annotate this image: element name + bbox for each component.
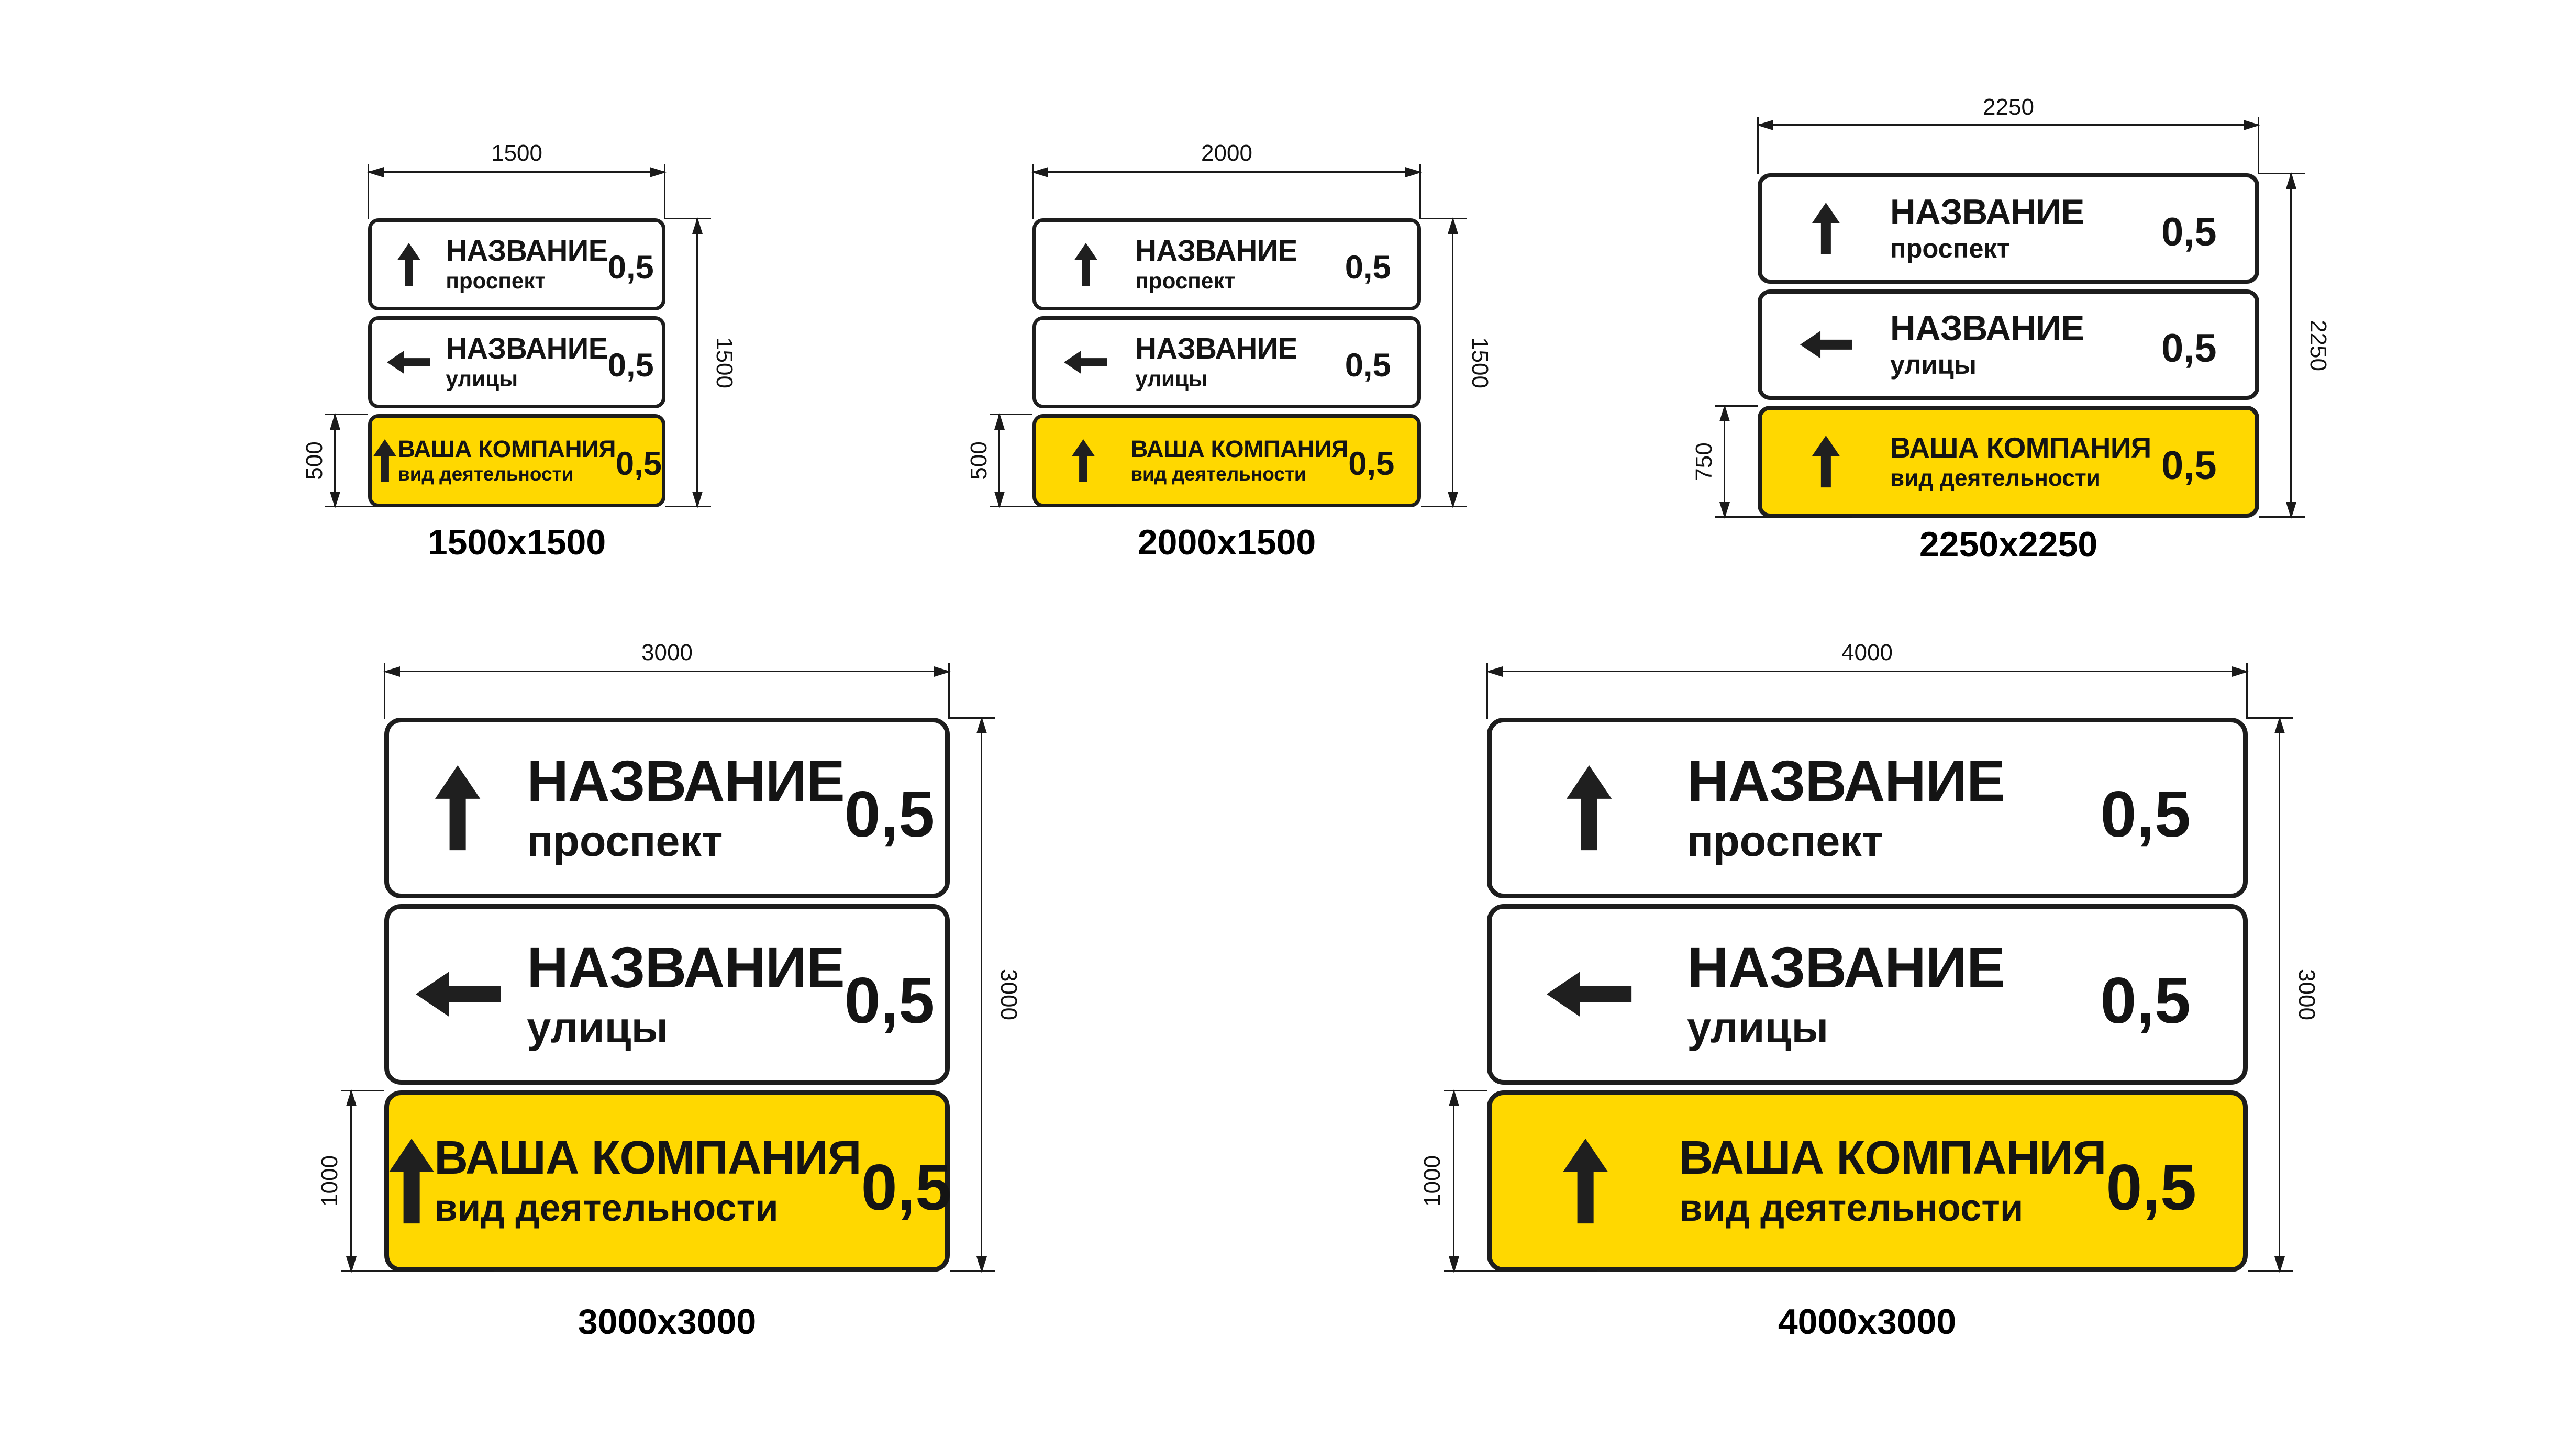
panel-text: НАЗВАНИЕ проспект <box>446 234 607 294</box>
panel-company: ВАША КОМПАНИЯ вид деятельности 0,5 <box>1758 406 2259 518</box>
panel-title: НАЗВАНИЕ <box>1687 935 2100 1001</box>
panel-title: НАЗВАНИЕ <box>1890 192 2161 233</box>
panel-distance: 0,5 <box>2161 435 2255 488</box>
panel-distance: 0,5 <box>1348 439 1417 483</box>
bottom-panel-dimension-line <box>1453 1090 1454 1272</box>
sign-figure-2250x2250: 2250 НАЗВАНИЕ проспект 0,5 НАЗВАНИЕ улиц… <box>1695 110 2333 575</box>
panel-subtitle: вид деятельности <box>1890 464 2161 492</box>
height-dimension-label: 1500 <box>1468 337 1491 388</box>
extension-line <box>948 663 950 719</box>
arrow-cell <box>1036 351 1135 374</box>
extension-line <box>1757 117 1759 174</box>
panel-street: НАЗВАНИЕ улицы 0,5 <box>1487 904 2248 1085</box>
panel-text: НАЗВАНИЕ проспект <box>1890 192 2161 264</box>
size-caption: 1500x1500 <box>428 522 606 563</box>
panel-title: ВАША КОМПАНИЯ <box>434 1131 861 1185</box>
panel-distance: 0,5 <box>1345 242 1417 286</box>
bottom-panel-dimension-line <box>1724 406 1725 518</box>
extension-line <box>1715 405 1758 407</box>
panel-title: НАЗВАНИЕ <box>446 234 607 268</box>
extension-line <box>950 717 995 719</box>
panel-subtitle: улицы <box>446 366 607 393</box>
width-dimension-label: 4000 <box>1841 641 1893 664</box>
panel-avenue: НАЗВАНИЕ проспект 0,5 <box>368 218 665 310</box>
extension-line <box>1486 663 1488 719</box>
width-dimension-line <box>1758 124 2259 126</box>
height-dimension-line <box>1452 218 1453 507</box>
panel-title: ВАША КОМПАНИЯ <box>1890 431 2161 464</box>
arrow-cell <box>389 972 527 1017</box>
width-dimension-label: 3000 <box>641 641 693 664</box>
arrow-cell <box>1762 331 1890 359</box>
up-arrow-icon <box>1072 439 1095 483</box>
panel-avenue: НАЗВАНИЕ проспект 0,5 <box>1487 718 2248 898</box>
extension-line <box>341 1270 494 1272</box>
panel-subtitle: вид деятельности <box>1679 1186 2106 1231</box>
arrow-cell <box>1492 765 1687 850</box>
left-arrow-icon <box>1800 331 1852 359</box>
panel-title: НАЗВАНИЕ <box>527 749 844 815</box>
sign-figure-3000x3000: 3000 НАЗВАНИЕ проспект 0,5 НАЗВАНИЕ улиц… <box>321 655 1023 1342</box>
arrow-cell <box>1492 1139 1679 1223</box>
height-dimension-label: 2250 <box>2306 320 2329 371</box>
bottom-panel-dimension-line <box>334 414 336 507</box>
extension-line <box>990 414 1032 415</box>
extension-line <box>2246 663 2248 719</box>
panel-subtitle: улицы <box>1135 366 1345 393</box>
extension-line <box>1032 164 1034 219</box>
panel-title: НАЗВАНИЕ <box>1890 308 2161 349</box>
panel-title: ВАША КОМПАНИЯ <box>398 436 616 463</box>
panel-title: ВАША КОМПАНИЯ <box>1130 436 1348 463</box>
bottom-panel-dimension-line <box>998 414 1000 507</box>
panel-distance: 0,5 <box>2161 318 2255 372</box>
arrow-cell <box>1036 439 1130 483</box>
size-caption: 3000x3000 <box>578 1301 756 1342</box>
panel-title: НАЗВАНИЕ <box>1135 332 1345 366</box>
panel-text: НАЗВАНИЕ улицы <box>1687 935 2100 1053</box>
extension-line <box>990 506 1116 507</box>
extension-line <box>665 506 711 507</box>
panel-text: НАЗВАНИЕ проспект <box>527 749 844 867</box>
panel-distance: 0,5 <box>845 764 945 851</box>
panel-text: НАЗВАНИЕ проспект <box>1135 234 1345 294</box>
panel-subtitle: проспект <box>1687 815 2100 867</box>
up-arrow-icon <box>1567 765 1612 850</box>
width-dimension-label: 2250 <box>1983 96 2034 119</box>
extension-line <box>1444 1090 1487 1091</box>
panel-avenue: НАЗВАНИЕ проспект 0,5 <box>384 718 950 898</box>
width-dimension-line <box>384 671 950 672</box>
panel-distance: 0,5 <box>608 340 662 384</box>
panel-text: ВАША КОМПАНИЯ вид деятельности <box>434 1131 861 1231</box>
height-dimension-label: 3000 <box>2295 969 2318 1020</box>
panel-avenue: НАЗВАНИЕ проспект 0,5 <box>1032 218 1421 310</box>
panel-avenue: НАЗВАНИЕ проспект 0,5 <box>1758 173 2259 284</box>
up-arrow-icon <box>1812 436 1840 487</box>
left-arrow-icon <box>1064 351 1107 374</box>
arrow-cell <box>1762 203 1890 254</box>
extension-line <box>1715 516 1852 518</box>
arrow-cell <box>372 439 398 483</box>
up-arrow-icon <box>1812 203 1840 254</box>
panel-company: ВАША КОМПАНИЯ вид деятельности 0,5 <box>384 1090 950 1272</box>
height-dimension-label: 1500 <box>713 337 736 388</box>
panel-distance: 0,5 <box>2161 202 2255 255</box>
panel-company: ВАША КОМПАНИЯ вид деятельности 0,5 <box>1032 414 1421 507</box>
panel-distance: 0,5 <box>2106 1138 2243 1224</box>
extension-line <box>384 663 385 719</box>
extension-line <box>325 506 452 507</box>
panel-subtitle: вид деятельности <box>398 463 616 486</box>
up-arrow-icon <box>1563 1139 1608 1223</box>
panel-subtitle: проспект <box>527 815 844 867</box>
panel-subtitle: проспект <box>1135 268 1345 295</box>
extension-line <box>1419 164 1421 219</box>
panel-street: НАЗВАНИЕ улицы 0,5 <box>368 316 665 408</box>
extension-line <box>1444 1270 1597 1272</box>
panel-title: НАЗВАНИЕ <box>1687 749 2100 815</box>
panel-company: ВАША КОМПАНИЯ вид деятельности 0,5 <box>1487 1090 2248 1272</box>
panel-text: НАЗВАНИЕ улицы <box>527 935 844 1053</box>
arrow-cell <box>1762 436 1890 487</box>
up-arrow-icon <box>397 243 420 286</box>
up-arrow-icon <box>435 765 480 850</box>
extension-line <box>2258 117 2259 174</box>
left-arrow-icon <box>387 351 430 374</box>
panel-text: ВАША КОМПАНИЯ вид деятельности <box>1890 431 2161 492</box>
height-dimension-line <box>696 218 698 507</box>
height-dimension-label: 3000 <box>997 969 1020 1020</box>
bottom-panel-dimension-label: 1000 <box>318 1155 341 1207</box>
extension-line <box>2248 717 2293 719</box>
panel-subtitle: улицы <box>527 1001 844 1053</box>
panel-distance: 0,5 <box>2100 764 2243 851</box>
panel-street: НАЗВАНИЕ улицы 0,5 <box>1032 316 1421 408</box>
left-arrow-icon <box>1547 972 1631 1017</box>
panel-street: НАЗВАНИЕ улицы 0,5 <box>1758 289 2259 400</box>
extension-line <box>368 164 369 219</box>
panel-subtitle: вид деятельности <box>434 1186 861 1231</box>
panel-company: ВАША КОМПАНИЯ вид деятельности 0,5 <box>368 414 665 507</box>
arrow-cell <box>372 243 446 286</box>
sign-figure-1500x1500: 1500 НАЗВАНИЕ проспект 0,5 НАЗВАНИЕ улиц… <box>305 155 739 569</box>
panel-subtitle: улицы <box>1890 349 2161 381</box>
panel-text: ВАША КОМПАНИЯ вид деятельности <box>1130 436 1348 486</box>
panel-street: НАЗВАНИЕ улицы 0,5 <box>384 904 950 1085</box>
sign-figure-4000x3000: 4000 НАЗВАНИЕ проспект 0,5 НАЗВАНИЕ улиц… <box>1424 655 2321 1342</box>
bottom-panel-dimension-label: 750 <box>1693 442 1716 481</box>
panel-title: НАЗВАНИЕ <box>527 935 844 1001</box>
extension-line <box>2259 173 2305 174</box>
panel-text: НАЗВАНИЕ улицы <box>1890 308 2161 381</box>
extension-line <box>2248 1270 2293 1272</box>
left-arrow-icon <box>416 972 501 1017</box>
extension-line <box>664 164 665 219</box>
panel-distance: 0,5 <box>861 1138 952 1224</box>
extension-line <box>950 1270 995 1272</box>
panel-text: НАЗВАНИЕ улицы <box>1135 332 1345 392</box>
width-dimension-line <box>368 171 665 173</box>
up-arrow-icon <box>373 439 396 483</box>
height-dimension-line <box>2290 173 2292 518</box>
extension-line <box>341 1090 384 1091</box>
extension-line <box>325 414 368 415</box>
arrow-cell <box>372 351 446 374</box>
panel-text: ВАША КОМПАНИЯ вид деятельности <box>398 436 616 486</box>
sign-figure-2000x1500: 2000 НАЗВАНИЕ проспект 0,5 НАЗВАНИЕ улиц… <box>970 155 1494 569</box>
panel-distance: 0,5 <box>2100 951 2243 1038</box>
panel-subtitle: проспект <box>1890 233 2161 265</box>
extension-line <box>2259 516 2305 518</box>
bottom-panel-dimension-line <box>350 1090 352 1272</box>
panel-subtitle: улицы <box>1687 1001 2100 1053</box>
panel-distance: 0,5 <box>845 951 945 1038</box>
size-caption: 2000x1500 <box>1138 522 1316 563</box>
panel-distance: 0,5 <box>608 242 662 286</box>
panel-text: ВАША КОМПАНИЯ вид деятельности <box>1679 1131 2106 1231</box>
panel-text: НАЗВАНИЕ проспект <box>1687 749 2100 867</box>
signage-size-diagram-page: { "colors": { "background": "#ffffff", "… <box>0 0 2576 1449</box>
height-dimension-line <box>2279 718 2280 1272</box>
height-dimension-line <box>981 718 982 1272</box>
bottom-panel-dimension-label: 1000 <box>1421 1155 1444 1207</box>
size-caption: 4000x3000 <box>1778 1301 1956 1342</box>
extension-line <box>1421 506 1467 507</box>
panel-title: ВАША КОМПАНИЯ <box>1679 1131 2106 1185</box>
panel-subtitle: вид деятельности <box>1130 463 1348 486</box>
up-arrow-icon <box>1074 243 1097 286</box>
arrow-cell <box>389 1139 434 1223</box>
arrow-cell <box>1492 972 1687 1017</box>
panel-title: НАЗВАНИЕ <box>446 332 607 366</box>
panel-distance: 0,5 <box>616 439 662 483</box>
width-dimension-line <box>1032 171 1421 173</box>
size-caption: 2250x2250 <box>1919 524 2097 565</box>
width-dimension-label: 1500 <box>491 142 542 165</box>
bottom-panel-dimension-label: 500 <box>303 441 326 480</box>
arrow-cell <box>389 765 527 850</box>
panel-title: НАЗВАНИЕ <box>1135 234 1345 268</box>
width-dimension-label: 2000 <box>1201 142 1252 165</box>
extension-line <box>665 218 711 219</box>
arrow-cell <box>1036 243 1135 286</box>
up-arrow-icon <box>389 1139 434 1223</box>
extension-line <box>1421 218 1467 219</box>
bottom-panel-dimension-label: 500 <box>968 441 991 480</box>
panel-distance: 0,5 <box>1345 340 1417 384</box>
panel-subtitle: проспект <box>446 268 607 295</box>
panel-text: НАЗВАНИЕ улицы <box>446 332 607 392</box>
width-dimension-line <box>1487 671 2248 672</box>
